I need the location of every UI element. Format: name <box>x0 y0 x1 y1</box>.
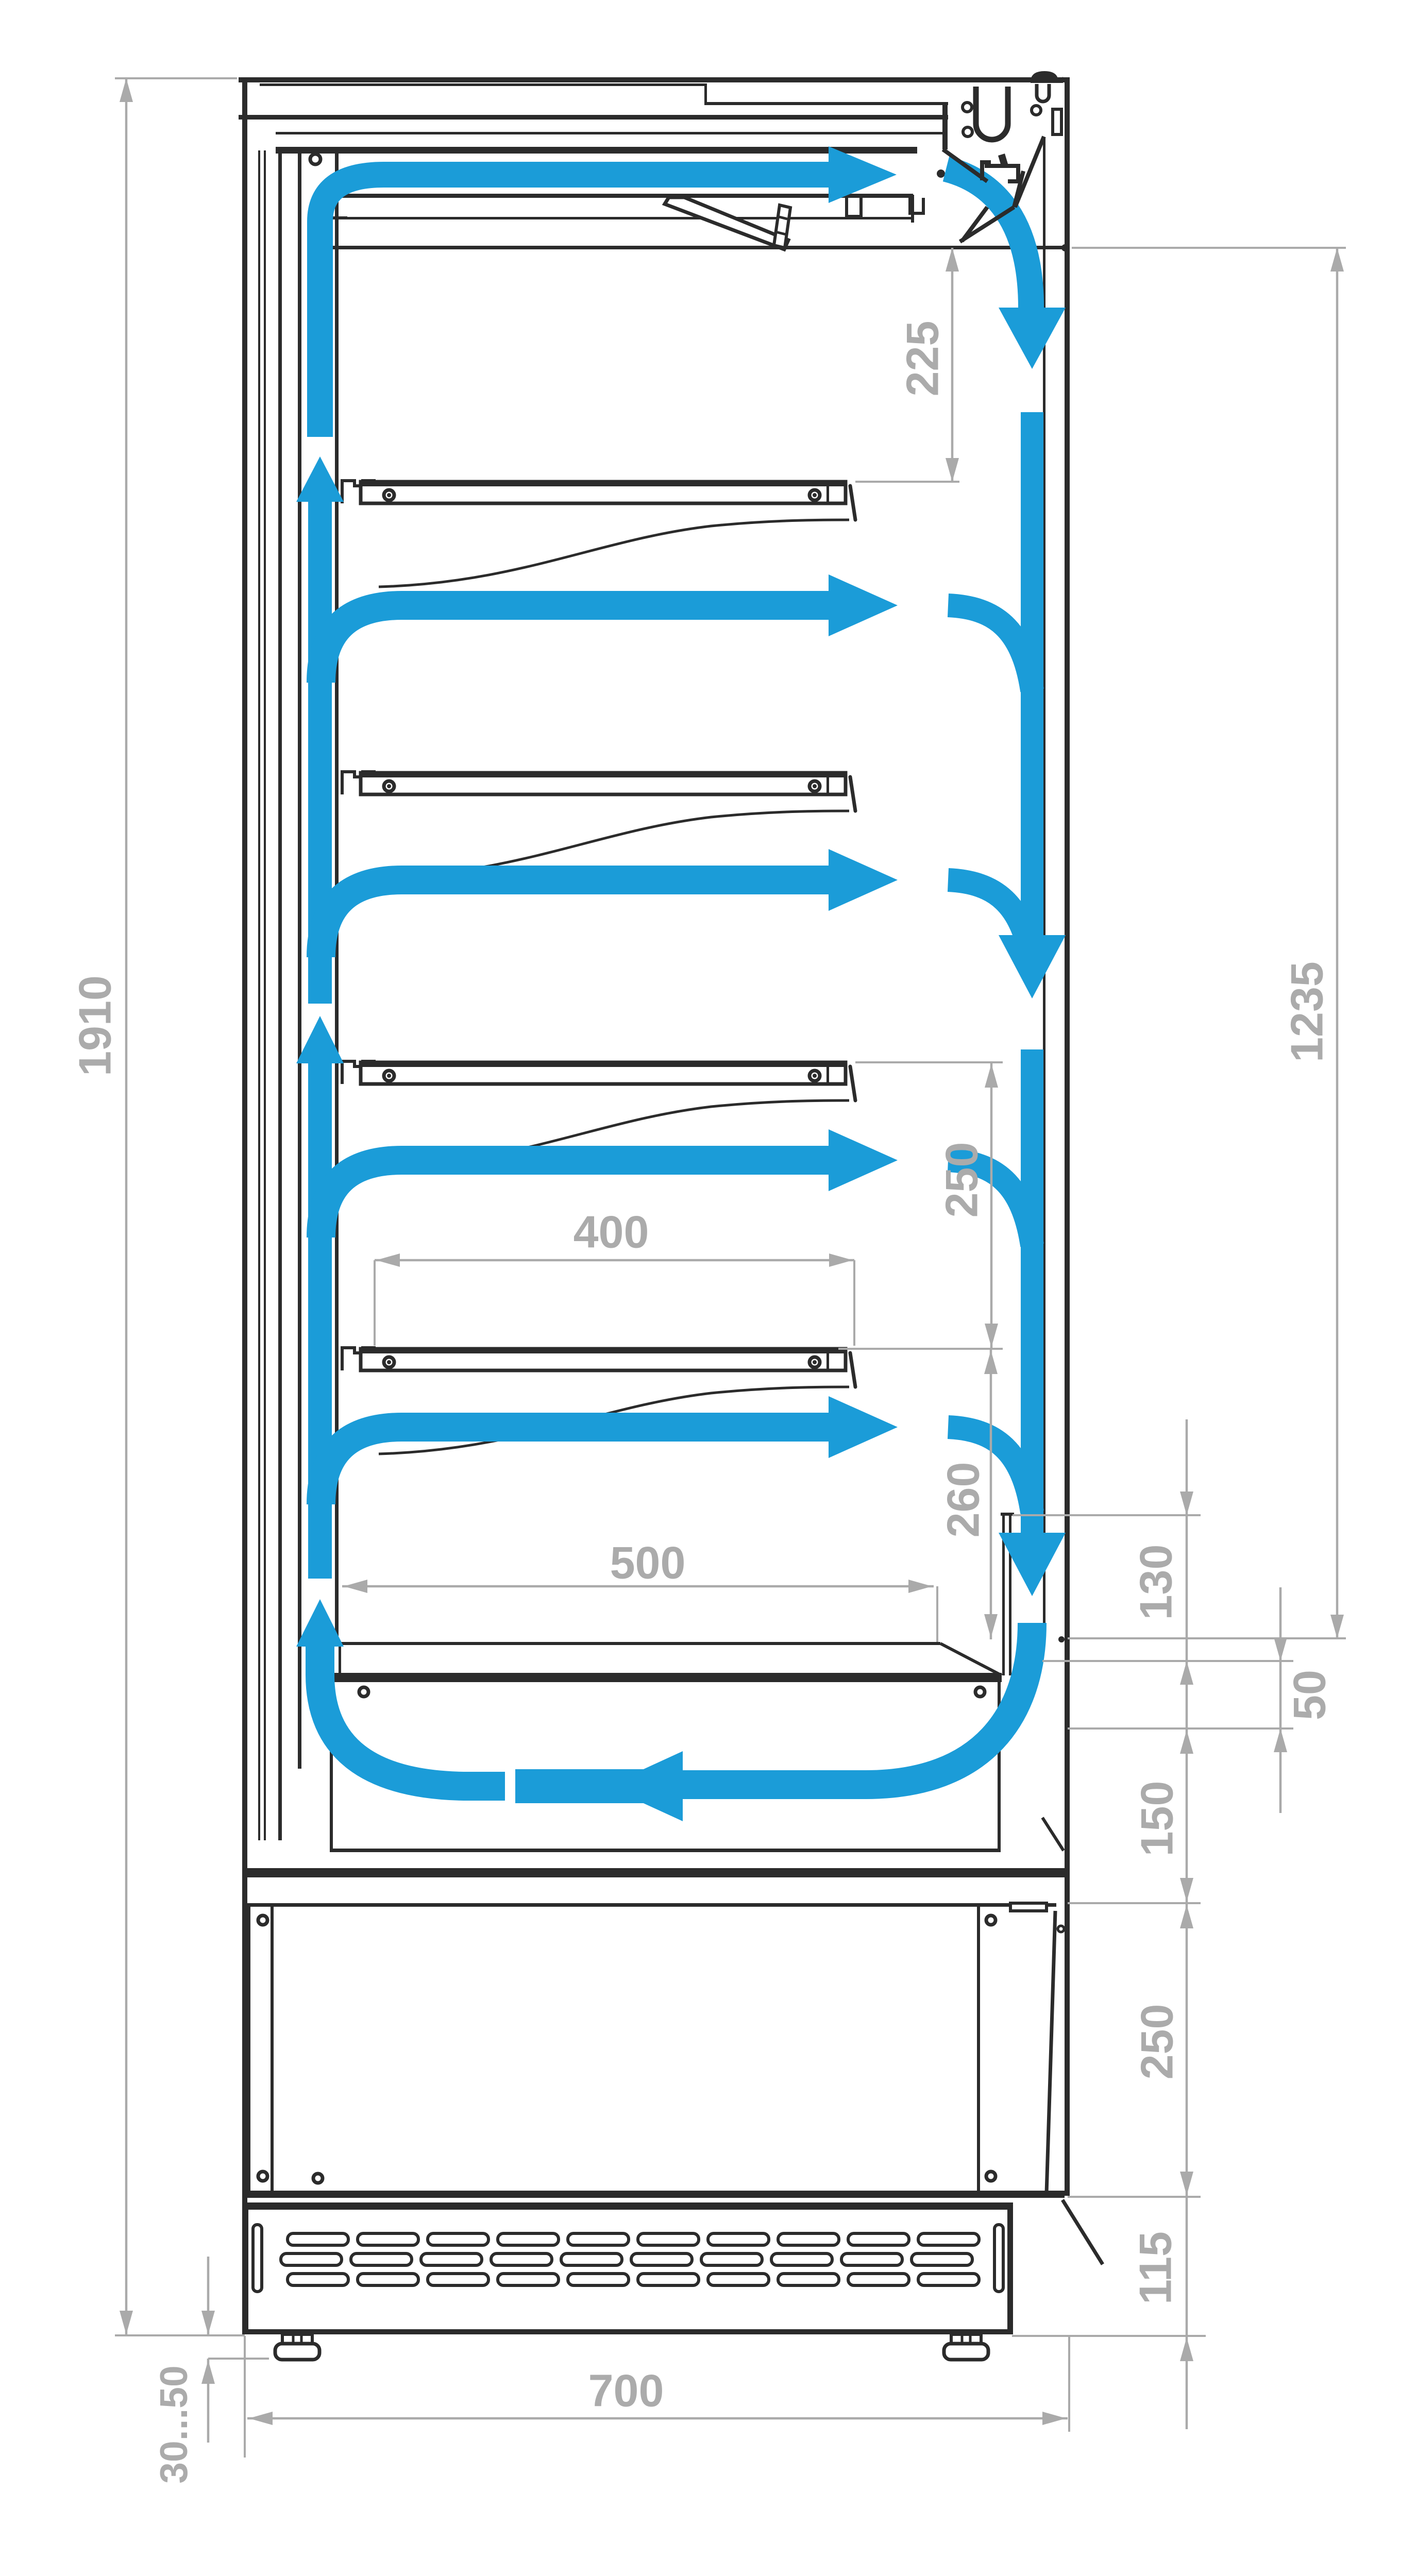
svg-text:130: 130 <box>1131 1545 1182 1620</box>
svg-text:1235: 1235 <box>1281 961 1332 1062</box>
svg-text:250: 250 <box>1132 2004 1183 2080</box>
svg-text:250: 250 <box>936 1142 987 1218</box>
svg-text:260: 260 <box>938 1462 989 1538</box>
svg-text:400: 400 <box>573 1207 649 1258</box>
svg-text:700: 700 <box>588 2365 664 2416</box>
svg-text:500: 500 <box>610 1537 686 1588</box>
svg-text:225: 225 <box>897 321 948 397</box>
svg-text:30...50: 30...50 <box>152 2365 195 2483</box>
svg-text:50: 50 <box>1284 1670 1335 1720</box>
svg-text:115: 115 <box>1130 2231 1181 2304</box>
svg-text:1910: 1910 <box>70 975 121 1076</box>
svg-text:150: 150 <box>1132 1781 1183 1857</box>
